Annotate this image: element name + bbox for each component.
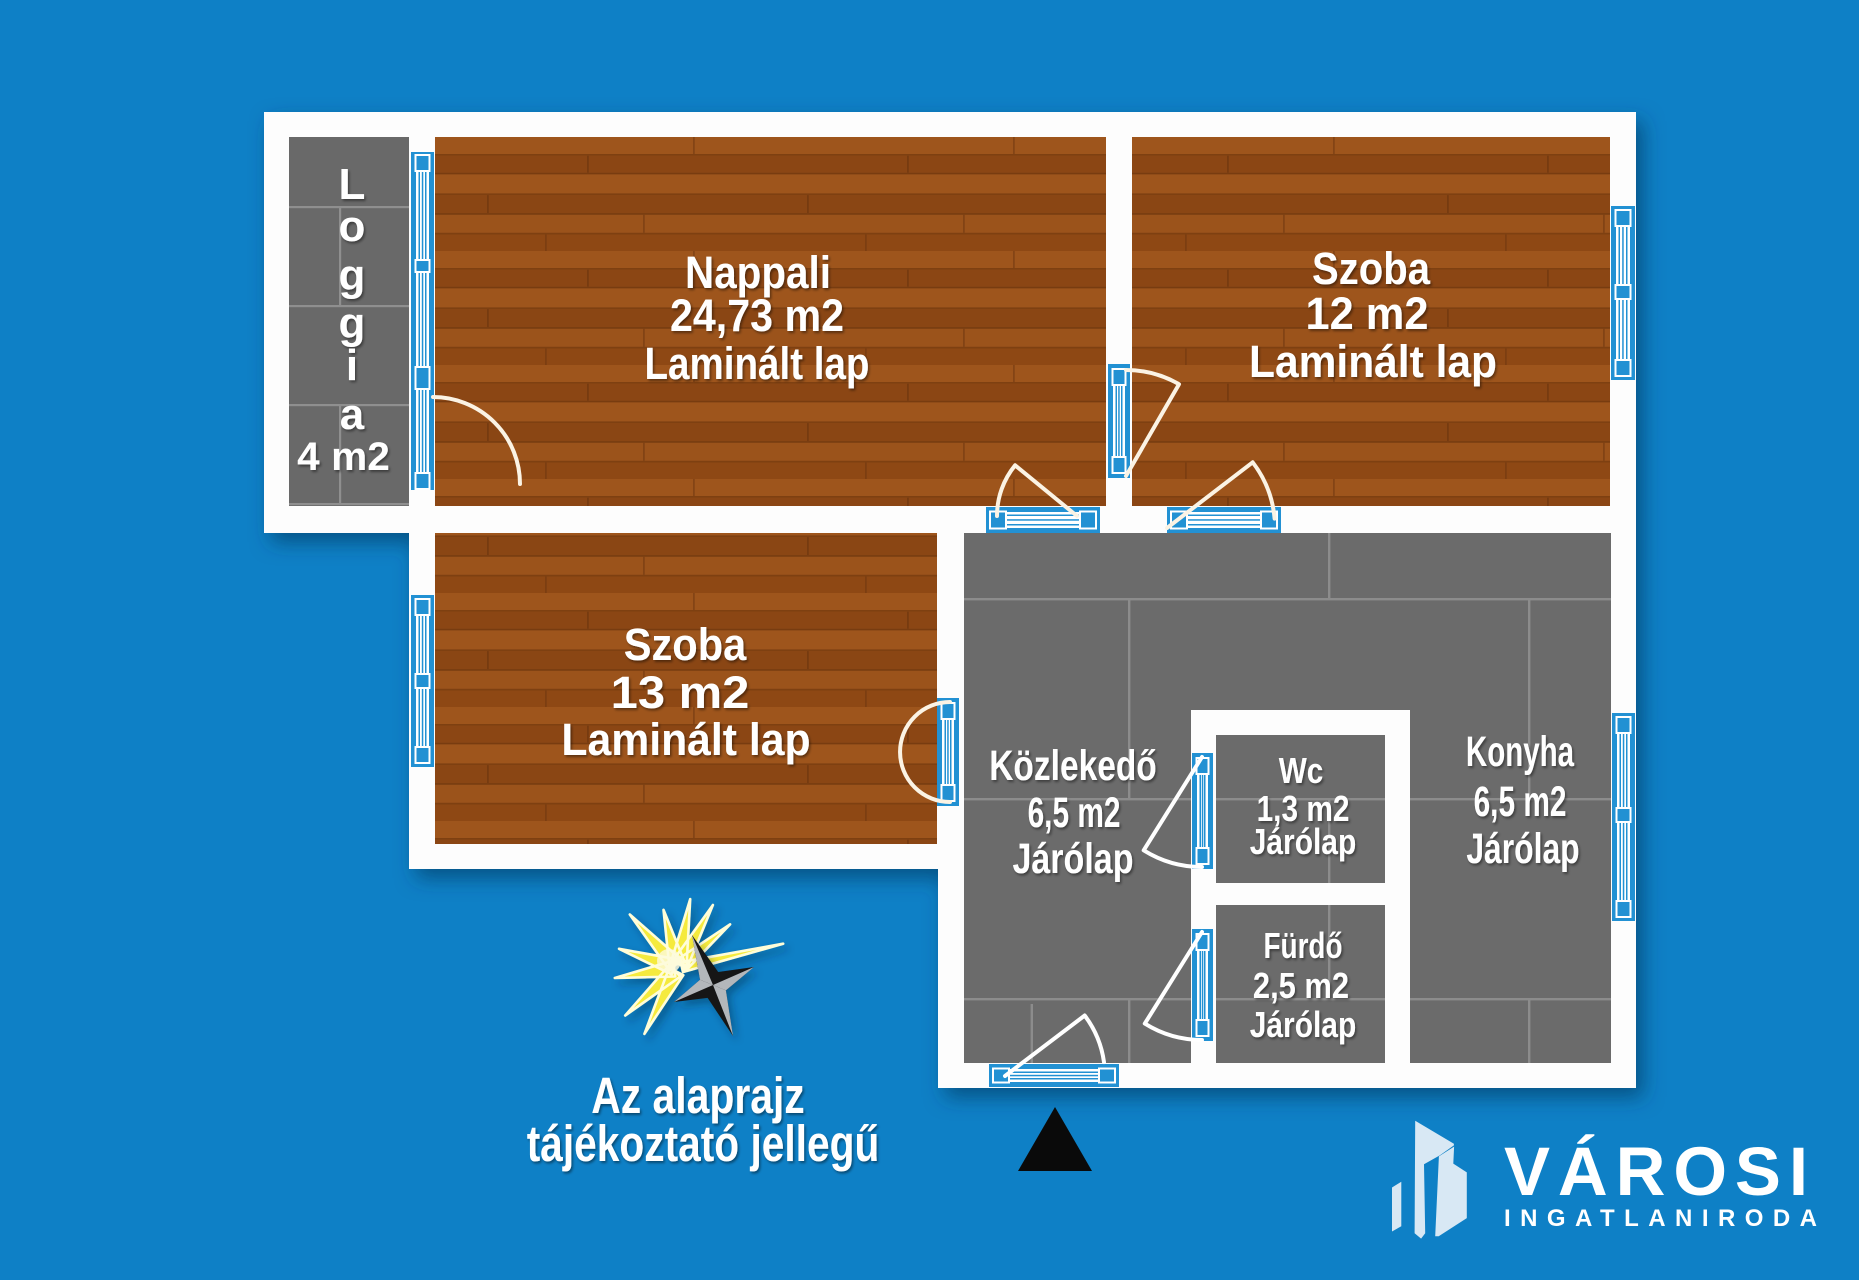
svg-text:o: o xyxy=(339,202,366,251)
svg-text:a: a xyxy=(340,390,365,439)
svg-text:g: g xyxy=(339,251,366,300)
svg-text:Laminált lap: Laminált lap xyxy=(1249,336,1497,387)
svg-text:Fürdő: Fürdő xyxy=(1264,925,1343,966)
svg-text:VÁROSI: VÁROSI xyxy=(1504,1133,1808,1210)
svg-text:Wc: Wc xyxy=(1279,750,1324,791)
svg-text:6,5 m2: 6,5 m2 xyxy=(1028,789,1121,837)
svg-text:2,5 m2: 2,5 m2 xyxy=(1253,965,1349,1006)
svg-text:Konyha: Konyha xyxy=(1466,728,1575,776)
svg-text:Szoba: Szoba xyxy=(624,619,747,670)
svg-text:Járólap: Járólap xyxy=(1250,1004,1357,1045)
svg-text:Járólap: Járólap xyxy=(1012,835,1133,883)
svg-text:12 m2: 12 m2 xyxy=(1306,288,1429,339)
svg-text:13 m2: 13 m2 xyxy=(611,667,750,718)
svg-text:Szoba: Szoba xyxy=(1312,243,1431,294)
svg-text:Közlekedő: Közlekedő xyxy=(989,742,1157,790)
svg-text:Járólap: Járólap xyxy=(1250,821,1357,862)
svg-text:i: i xyxy=(346,341,358,390)
svg-text:Járólap: Járólap xyxy=(1466,825,1579,873)
svg-text:6,5 m2: 6,5 m2 xyxy=(1474,778,1567,826)
svg-text:tájékoztató jellegű: tájékoztató jellegű xyxy=(527,1115,880,1172)
svg-text:4 m2: 4 m2 xyxy=(297,435,390,479)
svg-text:Laminált lap: Laminált lap xyxy=(561,714,810,765)
svg-text:Laminált lap: Laminált lap xyxy=(645,338,870,389)
svg-text:24,73 m2: 24,73 m2 xyxy=(670,290,844,341)
